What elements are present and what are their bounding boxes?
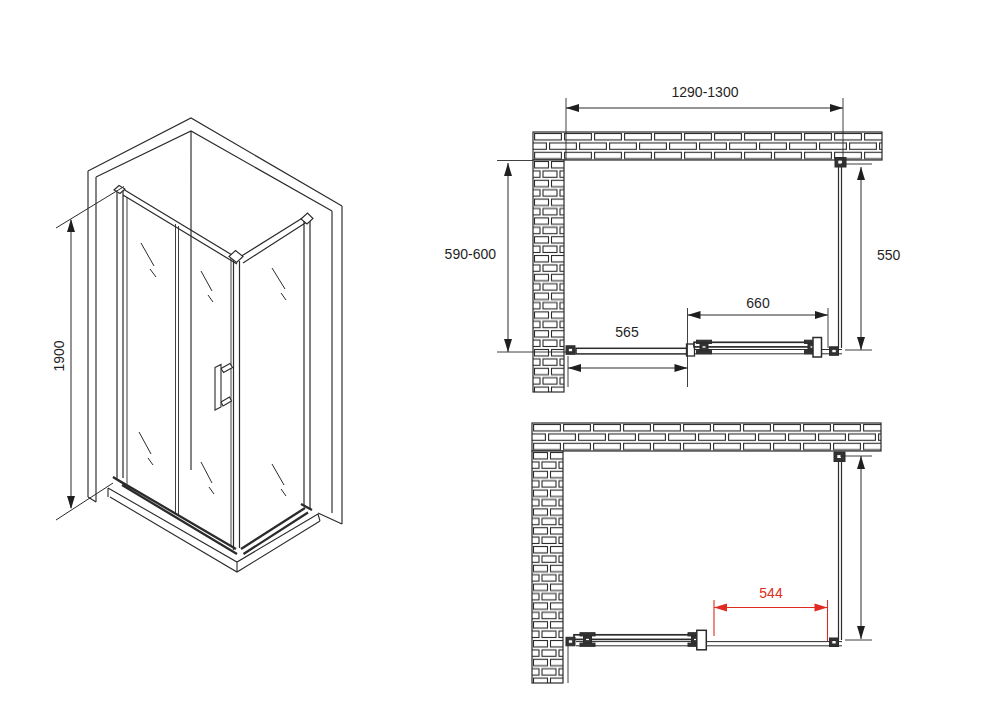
dim-label-opening: 544 xyxy=(759,585,783,601)
plan-view-top: 1290-1300 590-600 550 660 565 xyxy=(445,84,901,392)
wall-clamp-icon xyxy=(566,637,575,646)
iso-shower-tray xyxy=(108,488,320,572)
wall-anchor-icon xyxy=(834,452,845,462)
plan-view-bottom: 544 xyxy=(532,423,881,683)
iso-bottom-rails xyxy=(113,477,312,554)
plan-top-side-panel xyxy=(839,166,842,348)
dim-label-width: 1290-1300 xyxy=(672,84,739,100)
plan-bottom-track xyxy=(576,642,842,646)
dim-label-side-panel: 550 xyxy=(877,247,901,263)
plan-bottom-handle xyxy=(697,630,707,650)
wall-top-vertical xyxy=(533,160,564,392)
dim-opening-red: 544 xyxy=(714,585,828,641)
technical-drawing: 1900 1290- xyxy=(0,0,1000,707)
wall-bottom-vertical xyxy=(532,451,563,683)
wall-anchor-icon xyxy=(835,158,846,168)
plan-top-fixed-panel xyxy=(576,348,687,354)
iso-door-handle xyxy=(215,364,233,411)
drawing-canvas: 1900 1290- xyxy=(0,0,1000,707)
plan-bottom-extension-lines xyxy=(568,456,872,683)
corner-clamp-icon xyxy=(830,638,839,647)
dim-label-fixed-panel: 565 xyxy=(615,324,639,340)
plan-top-handle xyxy=(813,338,822,358)
dim-label-door-panel: 660 xyxy=(746,295,770,311)
plan-bottom-side-panel xyxy=(839,461,842,640)
dim-label-height: 1900 xyxy=(51,340,67,371)
glass-marks xyxy=(139,243,286,496)
iso-view: 1900 xyxy=(51,118,342,572)
wall-bottom-horizontal xyxy=(532,423,881,451)
iso-side-profile-cap xyxy=(301,213,313,224)
dim-label-depth: 590-600 xyxy=(445,246,497,262)
wall-clamp-icon xyxy=(566,346,575,355)
corner-clamp-icon xyxy=(830,347,839,356)
wall-top-horizontal xyxy=(533,132,882,160)
